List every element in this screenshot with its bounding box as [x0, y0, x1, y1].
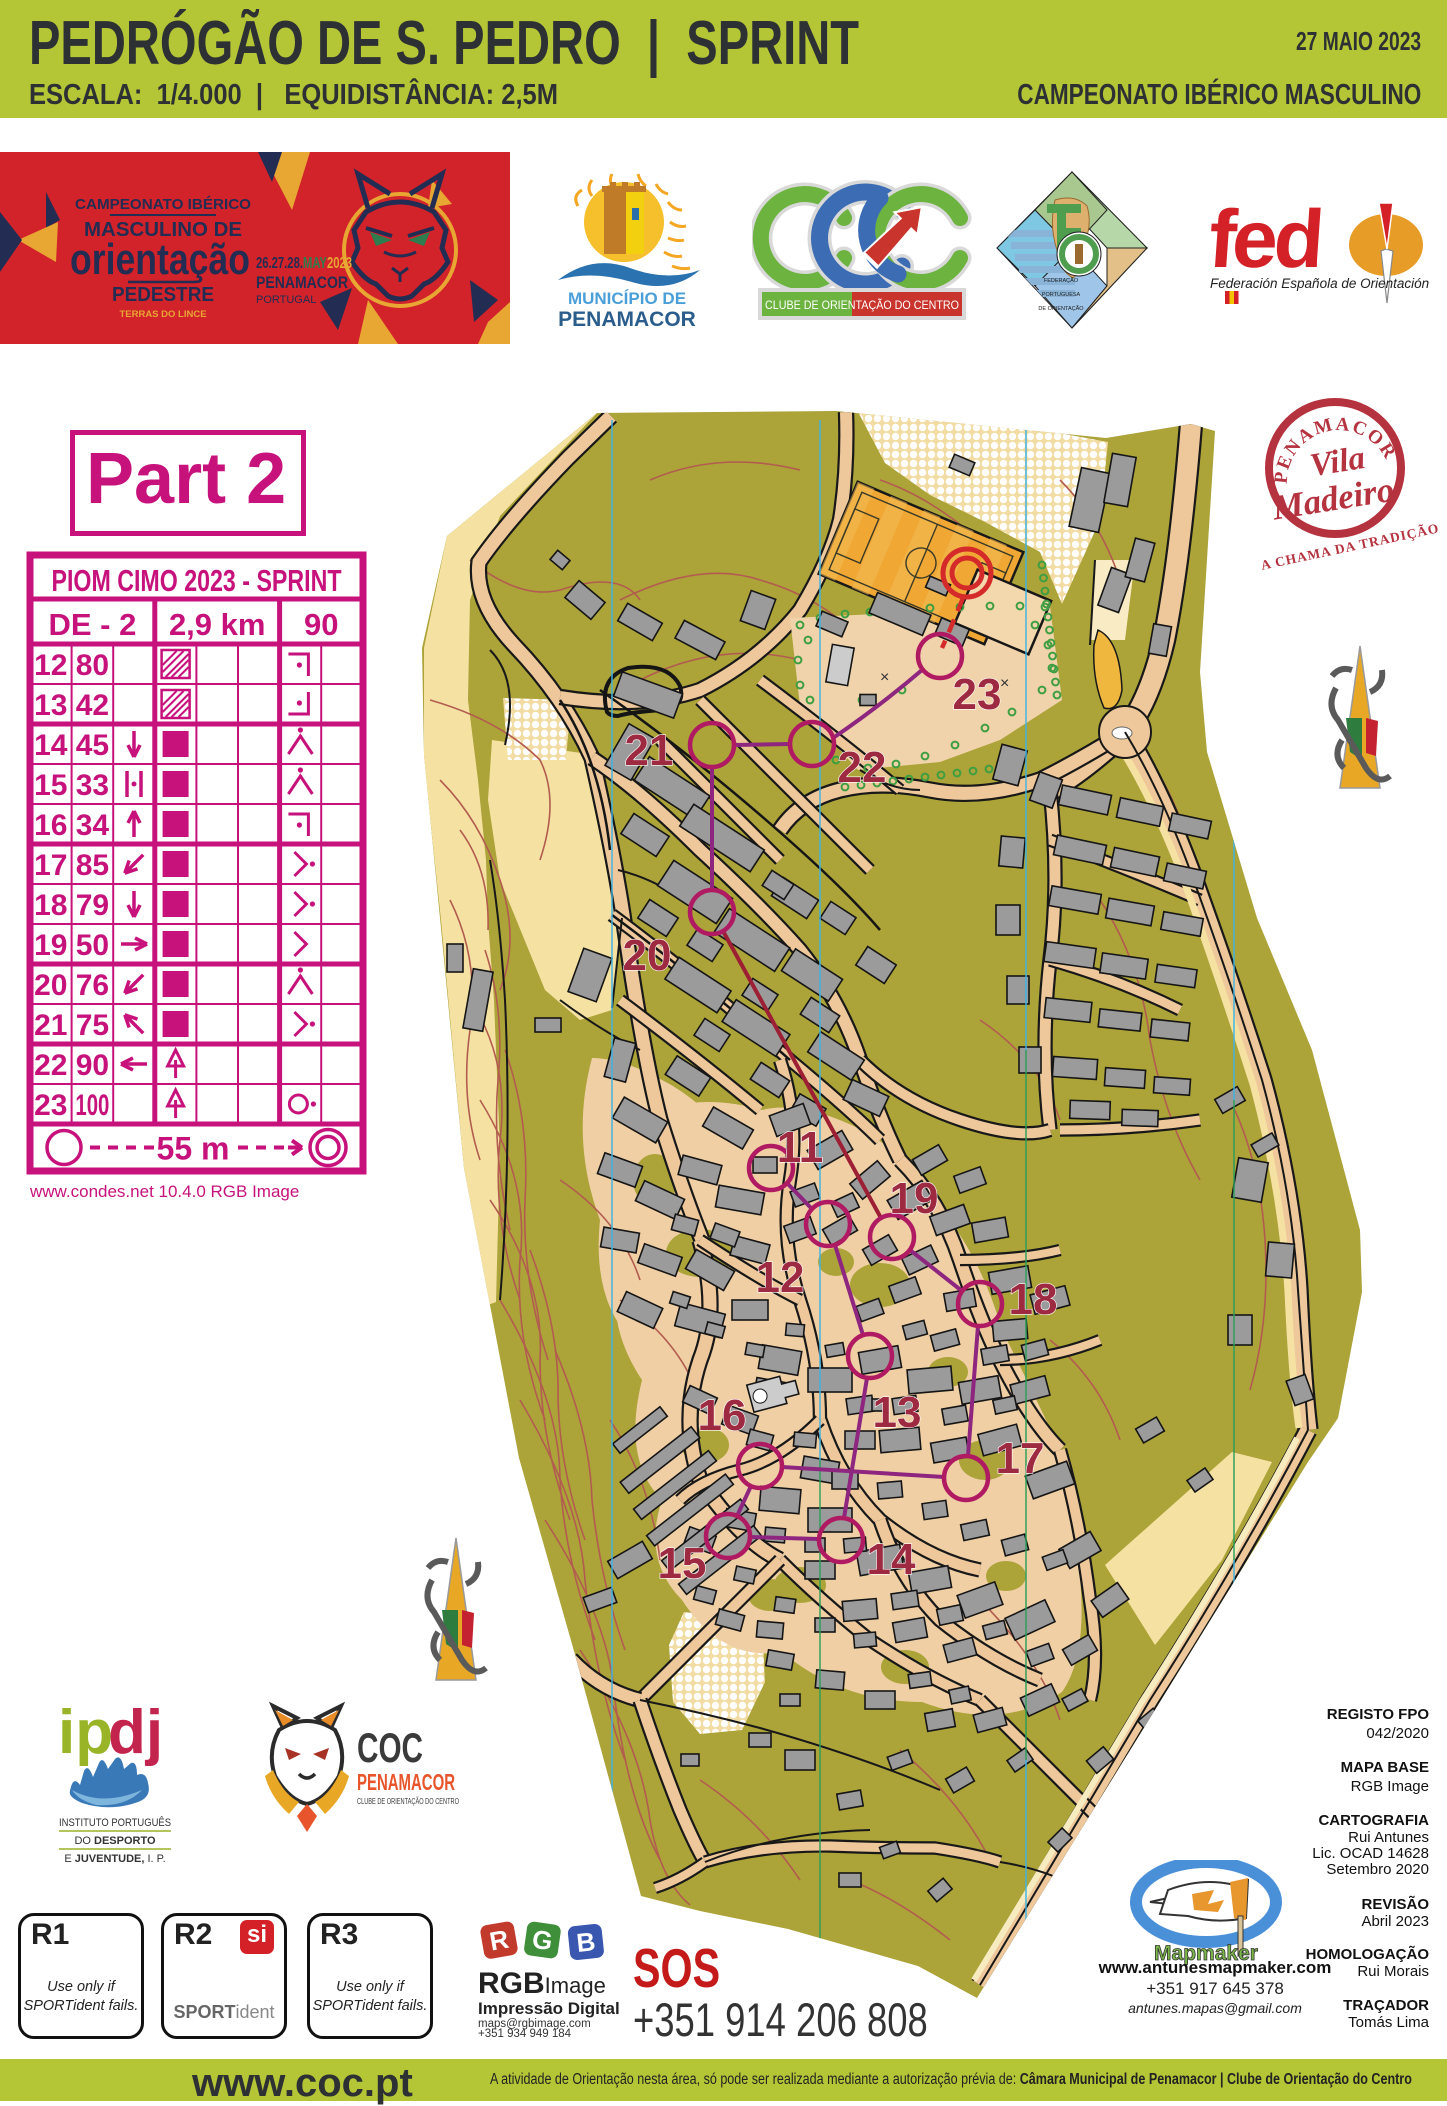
- svg-text:COC: COC: [357, 1724, 423, 1771]
- svg-text:17: 17: [996, 1434, 1045, 1483]
- svg-text:×: ×: [880, 669, 889, 686]
- svg-text:12: 12: [756, 1253, 805, 1302]
- svg-text:15: 15: [658, 1539, 707, 1588]
- svg-text:RGBImage: RGBImage: [478, 1967, 606, 2000]
- svg-text:Impressão Digital: Impressão Digital: [478, 1999, 620, 2018]
- svg-text:16: 16: [698, 1391, 747, 1440]
- svg-text:22: 22: [838, 743, 887, 792]
- svg-text:E JUVENTUDE, I. P.: E JUVENTUDE, I. P.: [64, 1853, 165, 1865]
- svg-text:13: 13: [873, 1388, 922, 1437]
- svg-text:21: 21: [625, 726, 674, 775]
- svg-text:20: 20: [623, 931, 672, 980]
- svg-text:18: 18: [1009, 1275, 1058, 1324]
- svg-text:ip: ip: [58, 1698, 113, 1767]
- svg-text:PENAMACOR: PENAMACOR: [357, 1769, 455, 1795]
- svg-text:11: 11: [777, 1123, 824, 1172]
- svg-text:B: B: [575, 1926, 597, 1958]
- svg-text:G: G: [530, 1924, 554, 1957]
- svg-text:dj: dj: [108, 1698, 163, 1767]
- svg-text:14: 14: [867, 1535, 916, 1584]
- svg-text:INSTITUTO PORTUGUÊS: INSTITUTO PORTUGUÊS: [59, 1816, 171, 1829]
- svg-text:CLUBE DE ORIENTAÇÃO DO CENTRO: CLUBE DE ORIENTAÇÃO DO CENTRO: [357, 1796, 459, 1806]
- svg-text:23: 23: [953, 670, 1002, 719]
- svg-text:19: 19: [890, 1174, 939, 1223]
- svg-text:DO DESPORTO: DO DESPORTO: [74, 1835, 156, 1847]
